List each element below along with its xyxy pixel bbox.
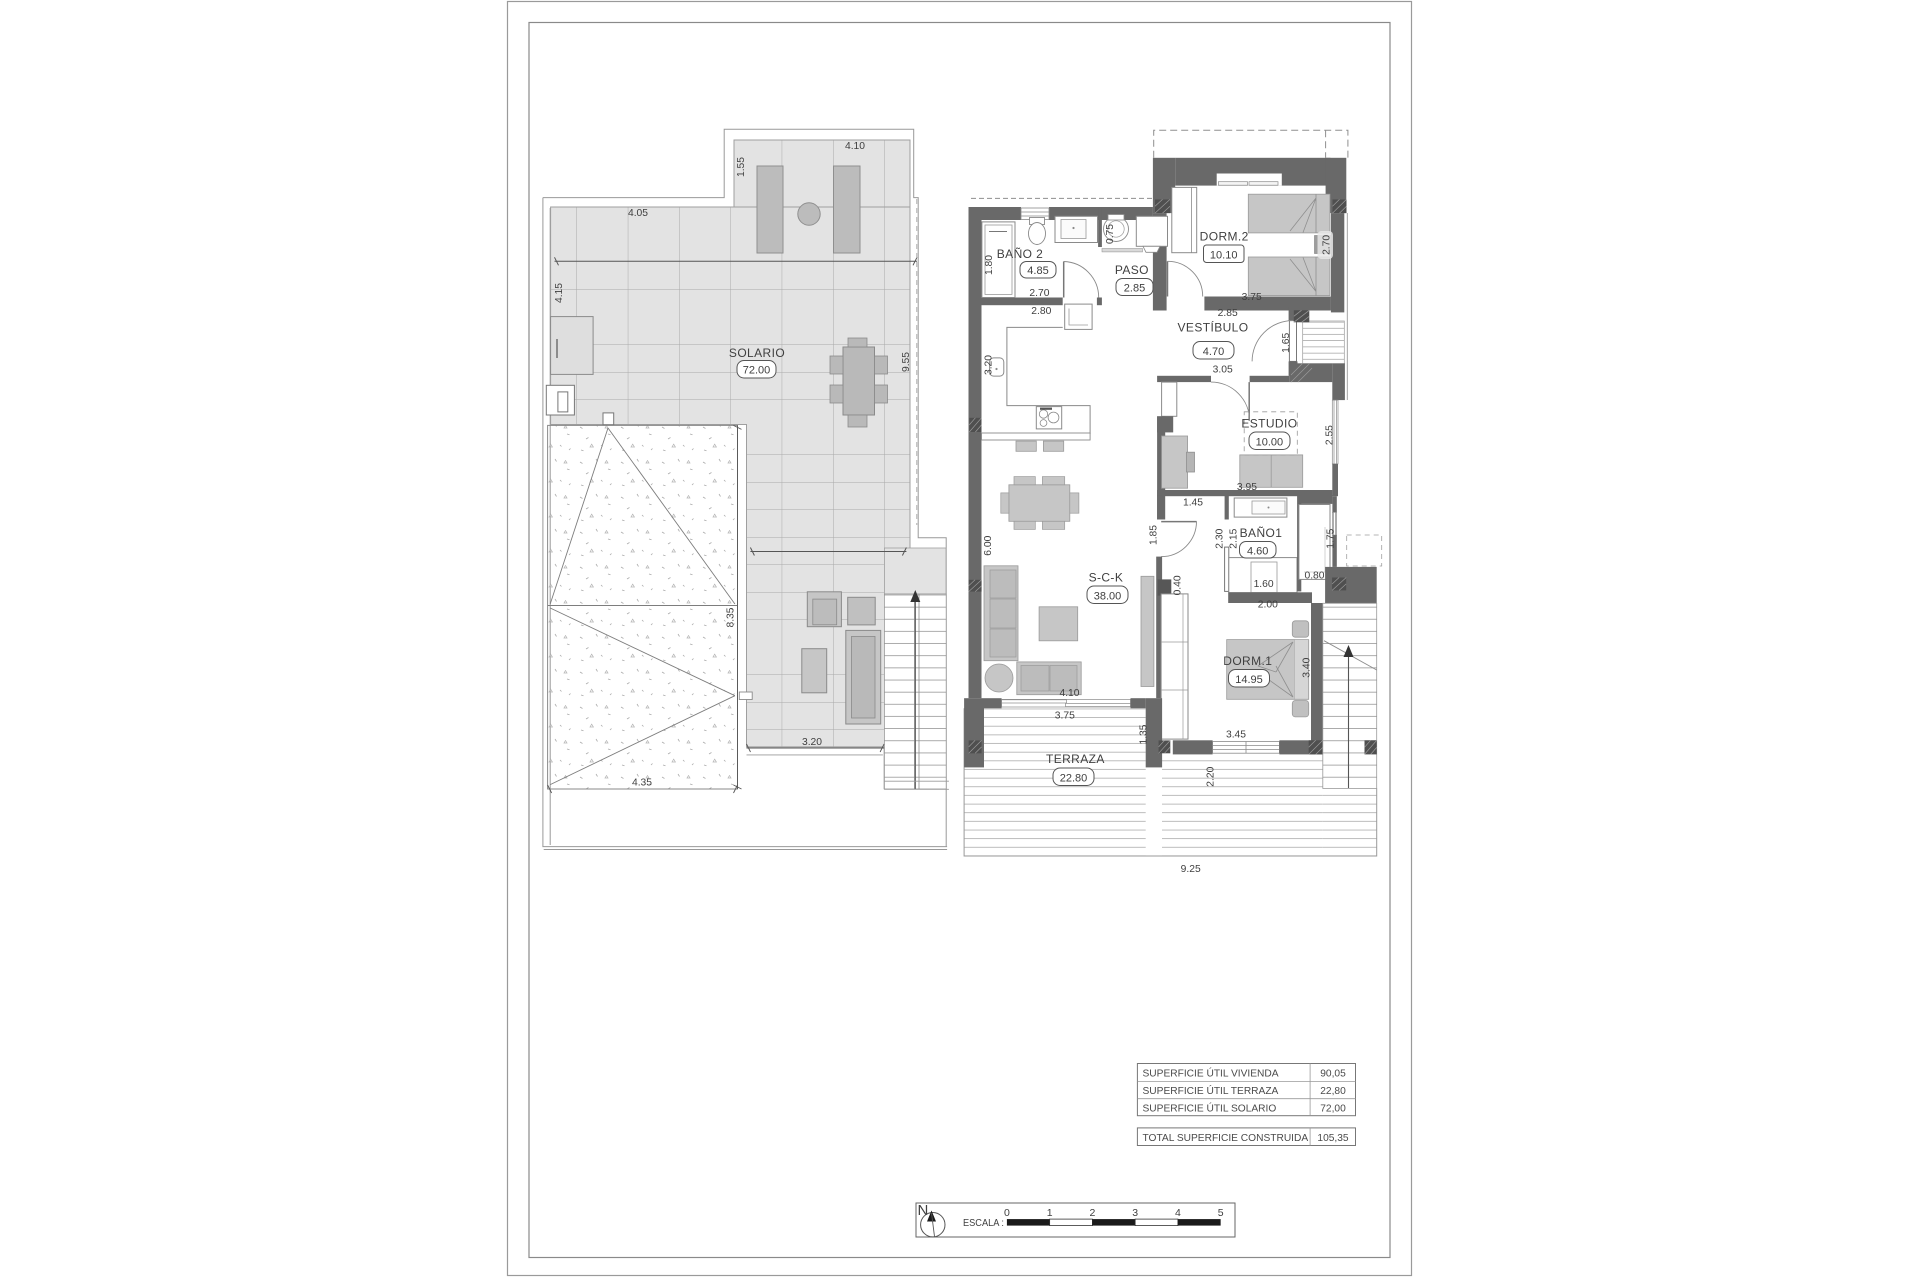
svg-text:BAÑO1: BAÑO1 <box>1240 526 1283 540</box>
svg-text:1.45: 1.45 <box>1183 498 1203 509</box>
svg-text:VESTÍBULO: VESTÍBULO <box>1178 320 1249 335</box>
svg-text:9.25: 9.25 <box>1181 864 1201 875</box>
svg-text:3: 3 <box>1132 1207 1138 1219</box>
svg-text:2.00: 2.00 <box>1258 600 1278 611</box>
svg-text:3.05: 3.05 <box>1213 365 1233 376</box>
svg-text:10.00: 10.00 <box>1256 437 1284 449</box>
svg-text:2.70: 2.70 <box>1322 235 1333 255</box>
svg-text:4.10: 4.10 <box>845 141 865 152</box>
svg-text:SOLARIO: SOLARIO <box>729 346 785 360</box>
svg-text:3.40: 3.40 <box>1302 657 1313 677</box>
svg-text:4.35: 4.35 <box>632 778 652 789</box>
svg-text:6.00: 6.00 <box>983 535 994 555</box>
svg-text:72,00: 72,00 <box>1320 1103 1346 1114</box>
svg-text:3.75: 3.75 <box>1055 711 1075 722</box>
svg-text:0.80: 0.80 <box>1304 571 1324 582</box>
svg-text:9.55: 9.55 <box>901 352 912 372</box>
svg-text:1: 1 <box>1047 1207 1053 1219</box>
svg-text:0.75: 0.75 <box>1105 224 1116 244</box>
svg-text:2.85: 2.85 <box>1218 308 1238 319</box>
svg-text:105,35: 105,35 <box>1317 1133 1348 1144</box>
svg-text:BAÑO 2: BAÑO 2 <box>997 247 1043 261</box>
svg-text:2: 2 <box>1089 1207 1095 1219</box>
svg-text:2.55: 2.55 <box>1325 425 1336 445</box>
svg-text:SUPERFICIE ÚTIL SOLARIO: SUPERFICIE ÚTIL SOLARIO <box>1143 1101 1277 1114</box>
svg-text:4.85: 4.85 <box>1027 265 1048 277</box>
svg-text:5: 5 <box>1218 1207 1224 1219</box>
svg-text:1.55: 1.55 <box>736 157 747 177</box>
svg-text:4.10: 4.10 <box>1059 688 1079 699</box>
svg-text:2.85: 2.85 <box>1124 283 1145 295</box>
svg-text:2.30: 2.30 <box>1215 528 1226 548</box>
svg-text:3.20: 3.20 <box>984 355 995 375</box>
svg-text:ESTUDIO: ESTUDIO <box>1241 417 1297 431</box>
svg-text:90,05: 90,05 <box>1320 1069 1346 1080</box>
svg-text:1.65: 1.65 <box>1281 333 1292 353</box>
svg-text:3.20: 3.20 <box>802 737 822 748</box>
svg-text:8.35: 8.35 <box>726 607 737 627</box>
svg-text:3.75: 3.75 <box>1242 292 1262 303</box>
svg-text:0.40: 0.40 <box>1173 575 1184 595</box>
svg-text:3.45: 3.45 <box>1226 730 1246 741</box>
svg-text:2.20: 2.20 <box>1206 766 1217 786</box>
svg-text:38.00: 38.00 <box>1094 591 1122 603</box>
svg-text:1.75: 1.75 <box>1326 528 1337 548</box>
svg-text:SUPERFICIE ÚTIL VIVIENDA: SUPERFICIE ÚTIL VIVIENDA <box>1143 1067 1279 1080</box>
svg-text:SUPERFICIE ÚTIL TERRAZA: SUPERFICIE ÚTIL TERRAZA <box>1143 1084 1279 1097</box>
svg-text:22.80: 22.80 <box>1060 773 1088 785</box>
svg-text:4: 4 <box>1175 1207 1181 1219</box>
svg-text:4.15: 4.15 <box>554 283 565 303</box>
svg-text:PASO: PASO <box>1115 263 1149 277</box>
svg-text:4.60: 4.60 <box>1247 546 1268 558</box>
svg-text:1.60: 1.60 <box>1254 579 1274 590</box>
svg-text:TERRAZA: TERRAZA <box>1046 752 1105 766</box>
svg-text:ESCALA :: ESCALA : <box>963 1217 1004 1229</box>
svg-text:14.95: 14.95 <box>1235 674 1263 686</box>
svg-text:DORM.2: DORM.2 <box>1200 230 1249 244</box>
svg-text:2.15: 2.15 <box>1229 528 1240 548</box>
svg-text:4.70: 4.70 <box>1203 346 1224 358</box>
svg-text:DORM.1: DORM.1 <box>1223 654 1272 668</box>
svg-text:TOTAL SUPERFICIE CONSTRUIDA: TOTAL SUPERFICIE CONSTRUIDA <box>1143 1133 1309 1144</box>
svg-text:10.10: 10.10 <box>1210 250 1238 262</box>
svg-text:1.80: 1.80 <box>984 255 995 275</box>
svg-text:S-C-K: S-C-K <box>1089 571 1124 585</box>
svg-text:22,80: 22,80 <box>1320 1086 1346 1097</box>
svg-text:2.70: 2.70 <box>1029 288 1049 299</box>
svg-text:2.80: 2.80 <box>1031 306 1051 317</box>
svg-text:4.05: 4.05 <box>628 208 648 219</box>
svg-text:3.95: 3.95 <box>1237 482 1257 493</box>
svg-text:1.35: 1.35 <box>1139 724 1150 744</box>
svg-text:72.00: 72.00 <box>743 365 771 377</box>
svg-text:1.85: 1.85 <box>1149 525 1160 545</box>
svg-text:0: 0 <box>1004 1207 1010 1219</box>
svg-text:N: N <box>918 1202 929 1219</box>
